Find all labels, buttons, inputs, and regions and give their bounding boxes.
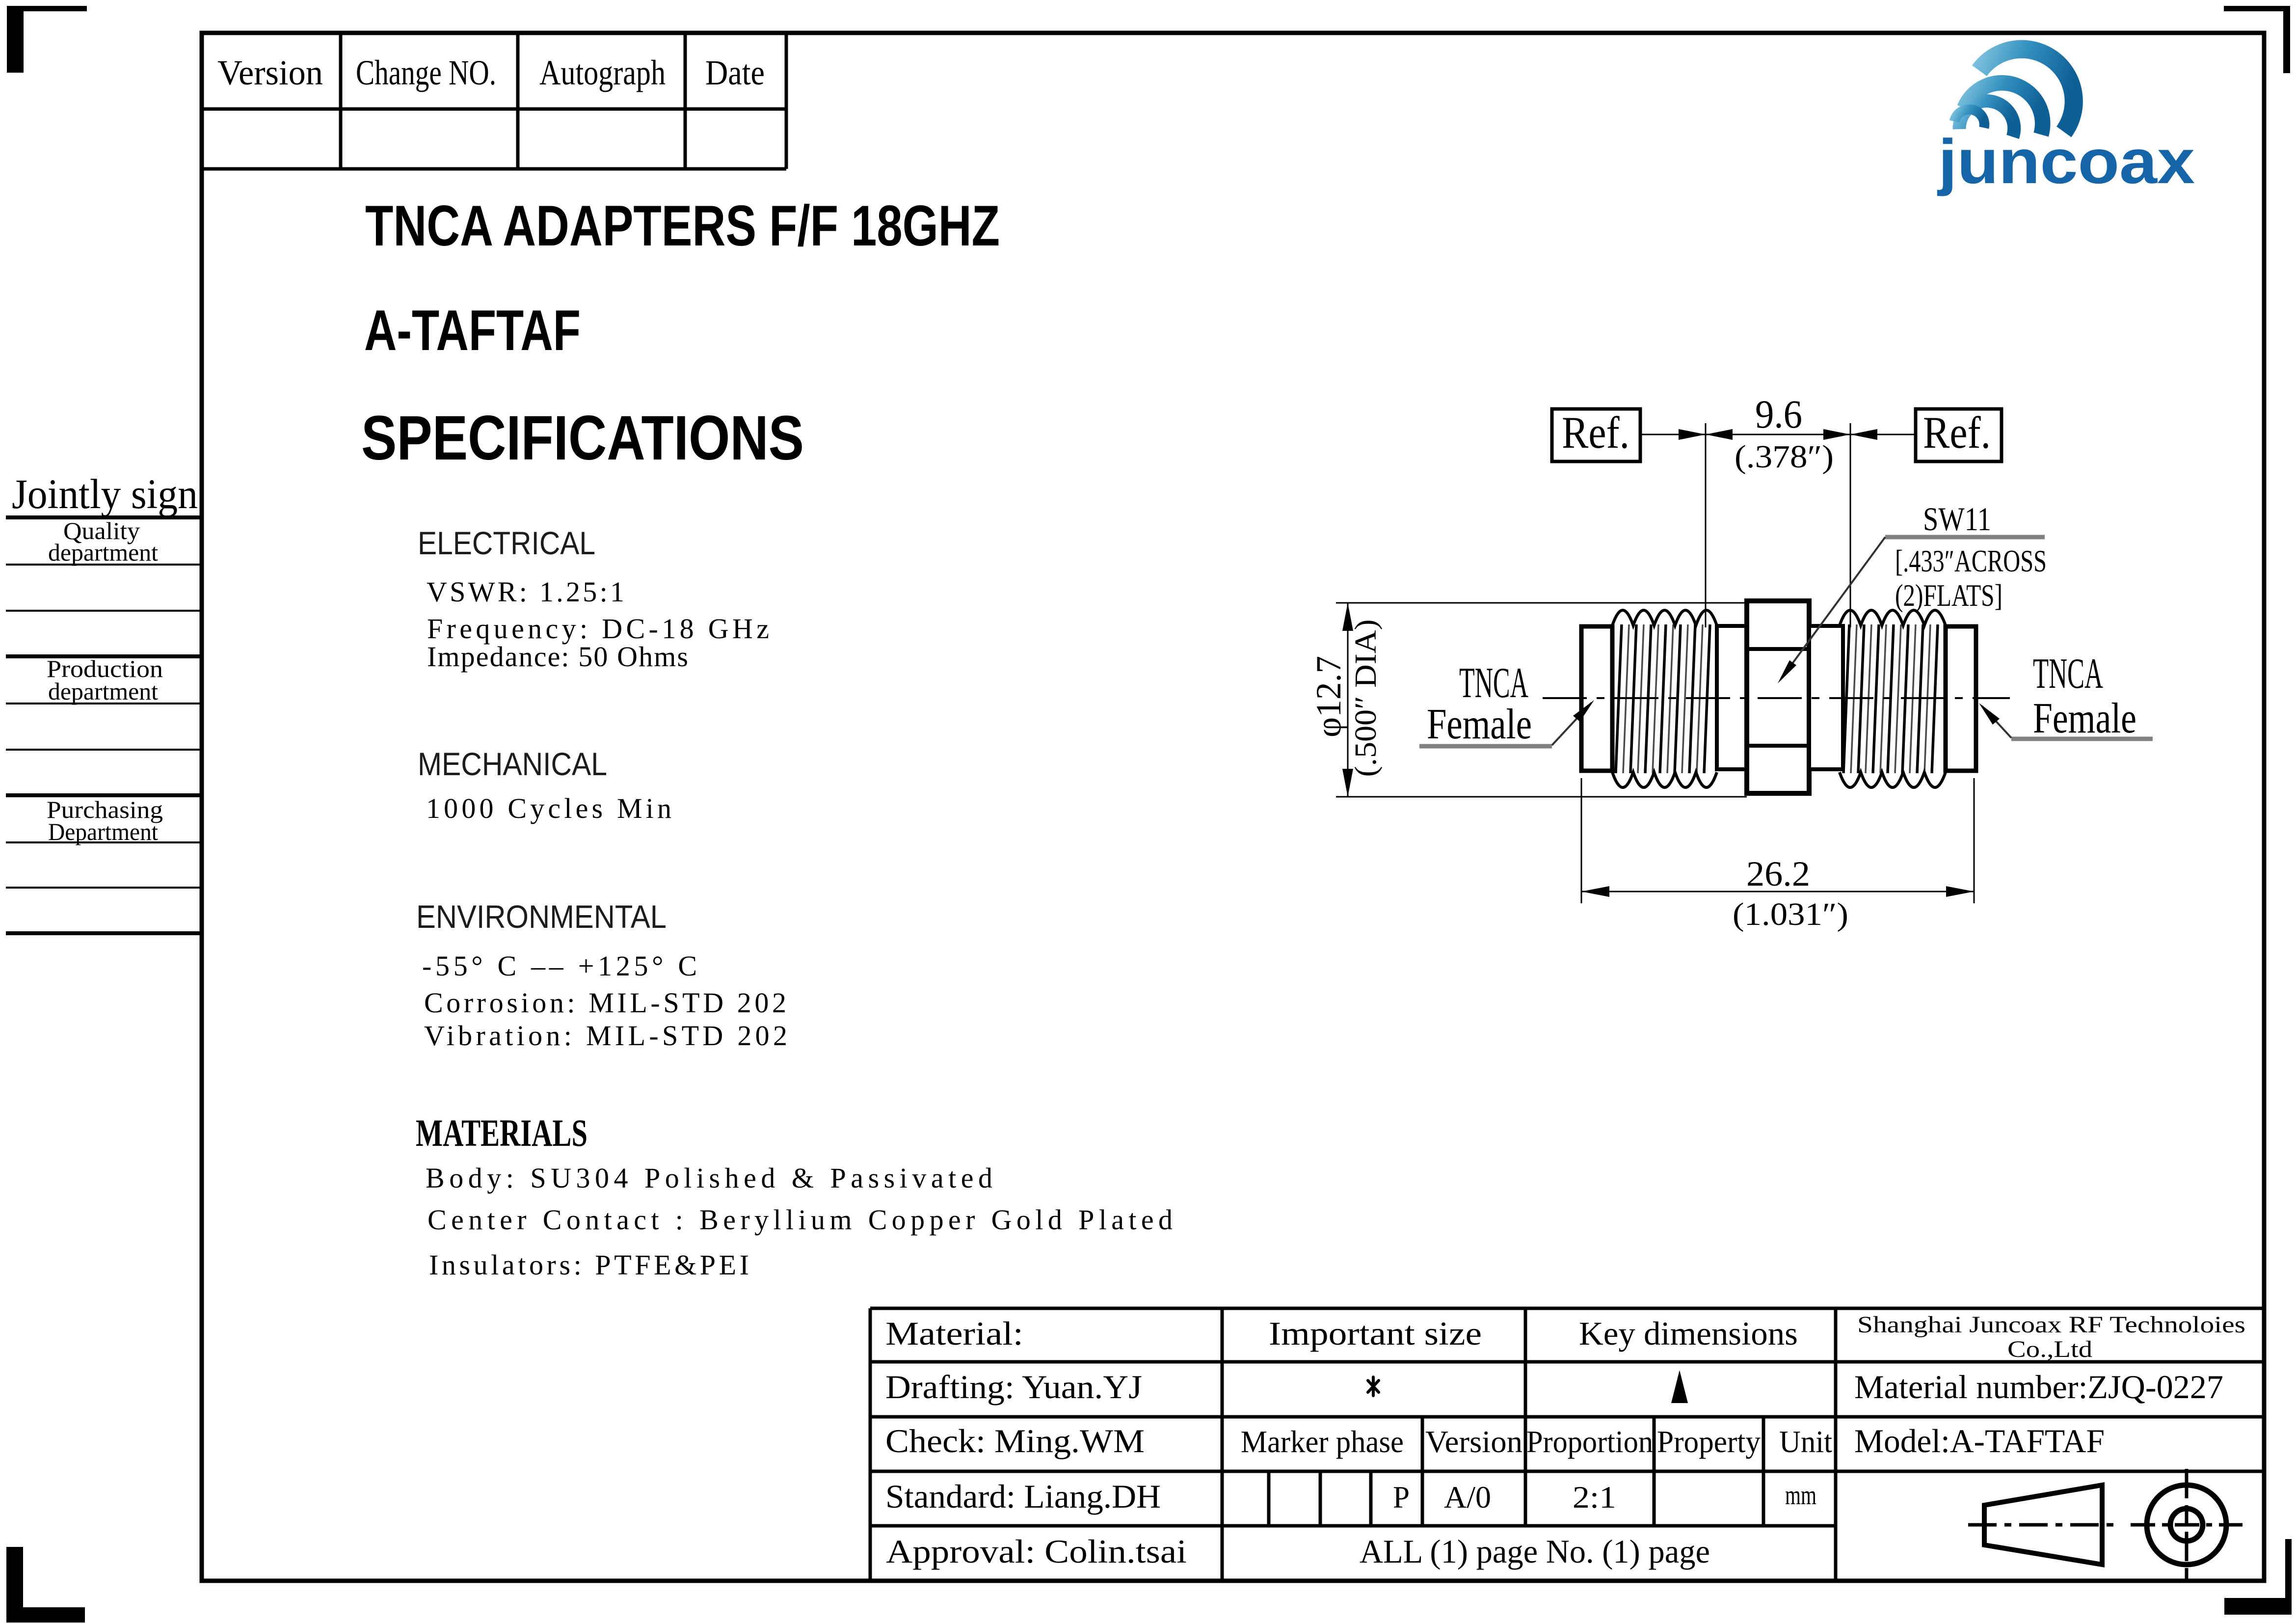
svg-text:1000 Cycles Min: 1000 Cycles Min (426, 792, 671, 824)
svg-text:A-TAFTAF: A-TAFTAF (364, 298, 581, 362)
svg-text:VSWR: 1.25:1: VSWR: 1.25:1 (427, 576, 624, 608)
svg-text:(1.031″): (1.031″) (1733, 896, 1848, 932)
svg-text:Material:: Material: (885, 1315, 1023, 1352)
svg-text:Center Contact : Beryllium Cop: Center Contact : Beryllium Copper Gold P… (427, 1204, 1173, 1236)
svg-text:ALL (1) page No. (1) page: ALL (1) page No. (1) page (1360, 1533, 1710, 1570)
svg-text:Ref.: Ref. (1923, 407, 1991, 458)
svg-text:φ12.7: φ12.7 (1309, 656, 1348, 737)
svg-text:Corrosion: MIL-STD 202: Corrosion: MIL-STD 202 (424, 987, 786, 1019)
svg-text:Standard: Liang.DH: Standard: Liang.DH (885, 1478, 1161, 1515)
svg-text:Impedance: 50 Ohms: Impedance: 50 Ohms (427, 641, 688, 673)
svg-text:Drafting: Yuan.YJ: Drafting: Yuan.YJ (885, 1368, 1142, 1406)
svg-text:Version: Version (217, 53, 323, 92)
svg-text:Key dimensions: Key dimensions (1579, 1315, 1798, 1352)
svg-text:(.500″ DIA): (.500″ DIA) (1349, 620, 1383, 777)
svg-text:(2)FLATS]: (2)FLATS] (1895, 578, 2002, 613)
svg-text:department: department (48, 539, 158, 566)
svg-text:Frequency: DC-18 GHz: Frequency: DC-18 GHz (427, 613, 769, 645)
svg-text:SPECIFICATIONS: SPECIFICATIONS (361, 403, 804, 473)
svg-text:juncoax: juncoax (1937, 127, 2195, 197)
svg-text:2:1: 2:1 (1573, 1480, 1616, 1515)
svg-text:Jointly sign: Jointly sign (12, 470, 198, 517)
svg-text:Model:A-TAFTAF: Model:A-TAFTAF (1854, 1422, 2105, 1460)
svg-text:Important size: Important size (1269, 1315, 1482, 1352)
svg-text:department: department (48, 677, 158, 705)
svg-text:ELECTRICAL: ELECTRICAL (418, 525, 595, 561)
svg-text:9.6: 9.6 (1755, 392, 1802, 436)
svg-text:TNCA: TNCA (2033, 650, 2103, 698)
svg-text:Autograph: Autograph (539, 53, 666, 92)
svg-text:(.378″): (.378″) (1735, 439, 1834, 475)
svg-text:A/0: A/0 (1444, 1480, 1491, 1515)
svg-text:ENVIRONMENTAL: ENVIRONMENTAL (416, 898, 667, 935)
svg-text:Shanghai Juncoax RF Technoloie: Shanghai Juncoax RF Technoloies (1857, 1312, 2245, 1338)
svg-text:Female: Female (1427, 701, 1532, 748)
svg-text:MATERIALS: MATERIALS (416, 1111, 587, 1154)
svg-text:Date: Date (705, 53, 765, 92)
svg-text:SW11: SW11 (1923, 500, 1991, 538)
svg-text:P: P (1393, 1480, 1410, 1515)
svg-text:Check: Ming.WM: Check: Ming.WM (885, 1422, 1145, 1460)
svg-text:mm: mm (1785, 1480, 1816, 1511)
svg-text:Department: Department (48, 818, 158, 845)
svg-text:MECHANICAL: MECHANICAL (418, 746, 607, 782)
svg-text:Insulators: PTFE&PEI: Insulators: PTFE&PEI (429, 1249, 749, 1281)
svg-text:[.433″ACROSS: [.433″ACROSS (1895, 543, 2047, 578)
svg-text:TNCA: TNCA (1459, 659, 1528, 707)
svg-text:Approval: Colin.tsai: Approval: Colin.tsai (886, 1533, 1187, 1570)
svg-text:Body: SU304 Polished & Passiv: Body: SU304 Polished & Passivated (426, 1162, 992, 1194)
svg-text:Unit: Unit (1779, 1424, 1832, 1459)
svg-text:Change NO.: Change NO. (356, 53, 496, 92)
svg-text:Female: Female (2033, 695, 2136, 742)
svg-text:Marker phase: Marker phase (1241, 1424, 1404, 1459)
svg-text:TNCA ADAPTERS F/F 18GHZ: TNCA ADAPTERS F/F 18GHZ (365, 193, 1000, 258)
svg-text:Proportion: Proportion (1526, 1424, 1653, 1459)
svg-text:Ref.: Ref. (1562, 407, 1629, 458)
svg-text:Co.,Ltd: Co.,Ltd (2007, 1336, 2092, 1362)
svg-text:Material number:ZJQ-0227: Material number:ZJQ-0227 (1854, 1368, 2223, 1406)
svg-text:Version: Version (1425, 1424, 1522, 1459)
svg-text:Property: Property (1657, 1424, 1761, 1459)
svg-text:26.2: 26.2 (1746, 854, 1810, 893)
svg-text:-55° C –– +125° C: -55° C –– +125° C (422, 950, 697, 982)
svg-text:Vibration: MIL-STD 202: Vibration: MIL-STD 202 (424, 1020, 787, 1052)
